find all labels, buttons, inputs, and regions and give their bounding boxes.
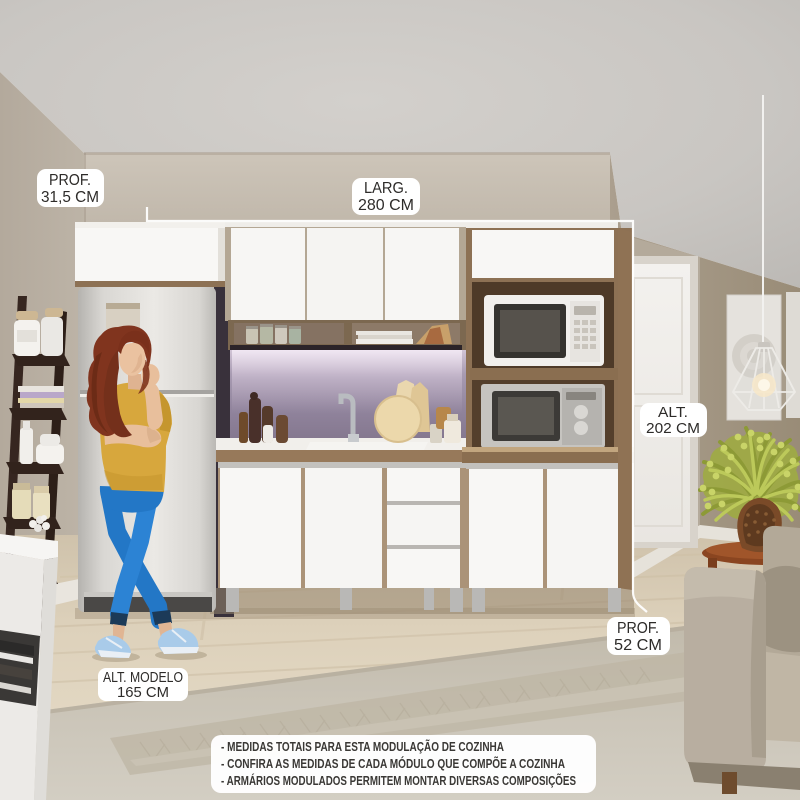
svg-text:202 CM: 202 CM — [646, 420, 700, 437]
svg-text:ALT.: ALT. — [658, 404, 688, 421]
svg-text:- CONFIRA AS MEDIDAS DE CADA M: - CONFIRA AS MEDIDAS DE CADA MÓDULO QUE … — [221, 756, 565, 771]
svg-text:LARG.: LARG. — [364, 180, 408, 197]
svg-text:52 CM: 52 CM — [614, 637, 662, 654]
svg-text:PROF.: PROF. — [617, 620, 659, 637]
svg-text:- ARMÁRIOS MODULADOS PERMITEM: - ARMÁRIOS MODULADOS PERMITEM MONTAR DIV… — [221, 773, 576, 788]
svg-text:- MEDIDAS TOTAIS PARA ESTA MOD: - MEDIDAS TOTAIS PARA ESTA MODULAÇÃO DE … — [221, 739, 504, 754]
svg-text:PROF.: PROF. — [49, 172, 91, 189]
svg-text:280 CM: 280 CM — [358, 197, 414, 214]
svg-text:165 CM: 165 CM — [117, 685, 169, 701]
svg-text:ALT. MODELO: ALT. MODELO — [103, 670, 183, 686]
svg-text:31,5 CM: 31,5 CM — [41, 189, 99, 206]
